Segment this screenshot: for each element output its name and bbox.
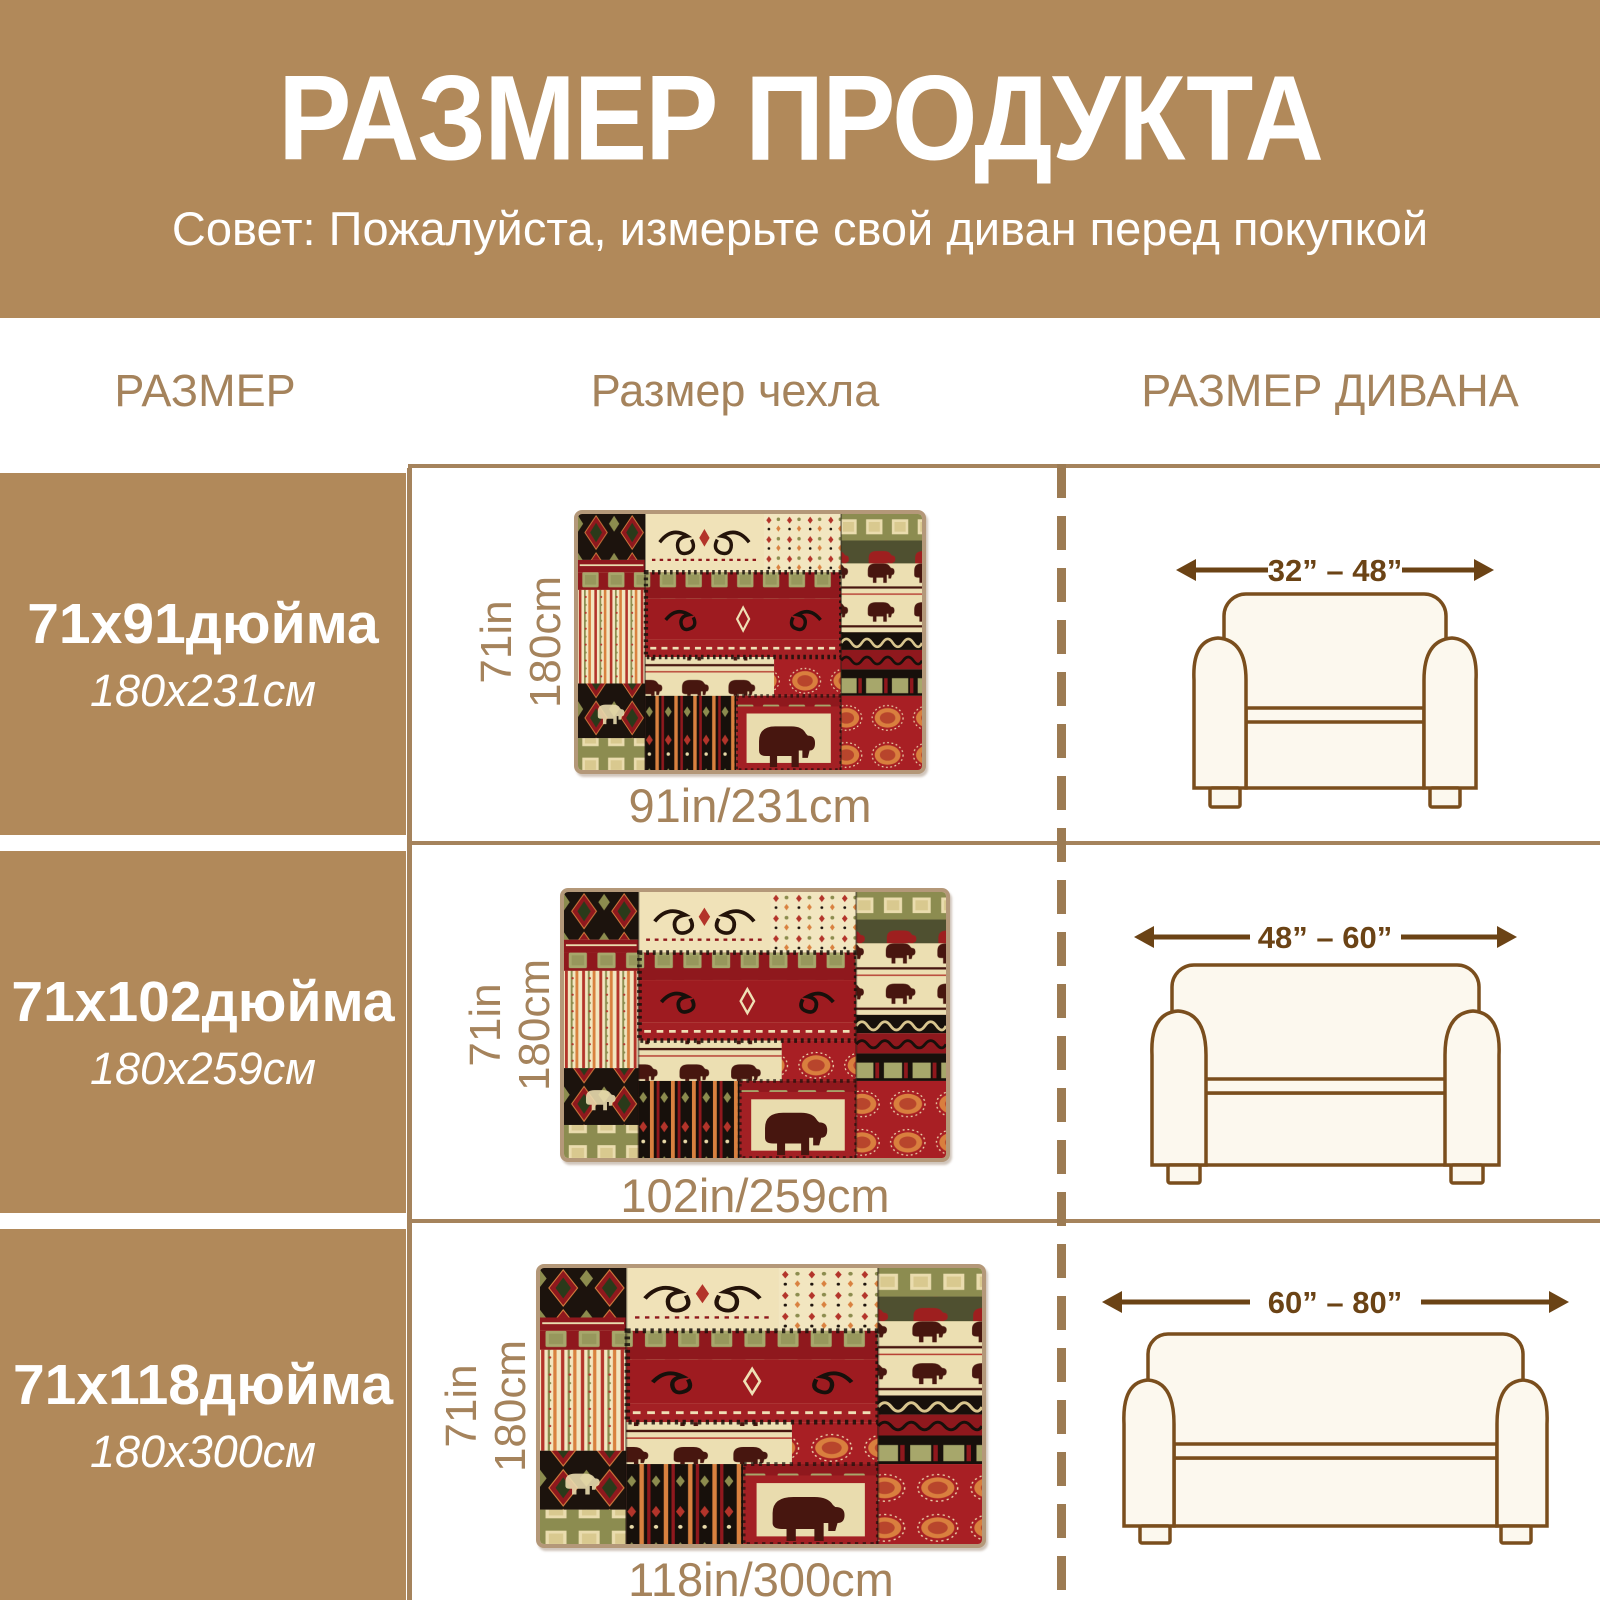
cover-width-label-row2: 102in/259cm (560, 1168, 950, 1223)
banner-subtitle: Совет: Пожалуйста, измерьте свой диван п… (0, 201, 1600, 256)
row-divider-line (408, 841, 1600, 845)
sofa-width-range-label: 48” – 60” (1258, 920, 1392, 955)
column-header-size: РАЗМЕР (0, 318, 410, 464)
cover-height-cm: 180cm (510, 892, 559, 1158)
size-label-inches: 71x91дюйма (27, 591, 379, 657)
column-header-sofa-size: РАЗМЕР ДИВАНА (1060, 318, 1600, 464)
banner: РАЗМЕР ПРОДУКТА Совет: Пожалуйста, измер… (0, 0, 1600, 318)
cover-height-label-row2: 71in 180cm (461, 892, 571, 1158)
cover-width-label-row3: 118in/300cm (536, 1552, 986, 1607)
size-cell-row1: 71x91дюйма 180x231см (0, 473, 406, 835)
sofa-diagram-sofa: 60” – 80” (1098, 1278, 1573, 1546)
cover-height-label-row1: 71in 180cm (472, 512, 582, 772)
cover-height-label-row3: 71in 180cm (437, 1268, 547, 1544)
sofa-width-range-label: 32” – 48” (1268, 553, 1402, 588)
cover-height-cm: 180cm (486, 1268, 535, 1544)
arrow-left-icon (1102, 1291, 1122, 1313)
cover-width-label-row1: 91in/231cm (574, 778, 926, 833)
cover-height-inches: 71in (437, 1268, 486, 1544)
sofa-diagram-armchair: 32” – 48” (1170, 548, 1500, 810)
size-label-cm: 180x259см (90, 1043, 316, 1095)
cover-height-cm: 180cm (521, 512, 570, 772)
cover-height-inches: 71in (472, 512, 521, 772)
size-cell-row2: 71x102дюйма 180x259см (0, 851, 406, 1213)
dashed-column-divider (1057, 464, 1066, 1600)
arrow-right-icon (1549, 1291, 1569, 1313)
fabric-swatch-image-row3 (536, 1264, 986, 1548)
arrow-right-icon (1497, 926, 1517, 948)
size-label-inches: 71x102дюйма (11, 969, 394, 1035)
size-cell-row3: 71x118дюйма 180x300см (0, 1229, 406, 1600)
sofa-width-range-label: 60” – 80” (1268, 1285, 1402, 1320)
row-divider-line (408, 464, 1600, 468)
size-label-inches: 71x118дюйма (13, 1352, 393, 1418)
cover-height-inches: 71in (461, 892, 510, 1158)
arrow-right-icon (1474, 559, 1494, 581)
sofa-diagram-loveseat: 48” – 60” (1128, 915, 1523, 1187)
size-label-cm: 180x231см (90, 665, 316, 717)
column-divider-line (407, 468, 412, 1600)
page-title: РАЗМЕР ПРОДУКТА (0, 0, 1600, 188)
size-label-cm: 180x300см (90, 1426, 316, 1478)
fabric-swatch-image-row1 (574, 510, 926, 774)
arrow-left-icon (1134, 926, 1154, 948)
column-header-cover-size: Размер чехла (410, 318, 1060, 464)
fabric-swatch-image-row2 (560, 888, 950, 1162)
arrow-left-icon (1176, 559, 1196, 581)
